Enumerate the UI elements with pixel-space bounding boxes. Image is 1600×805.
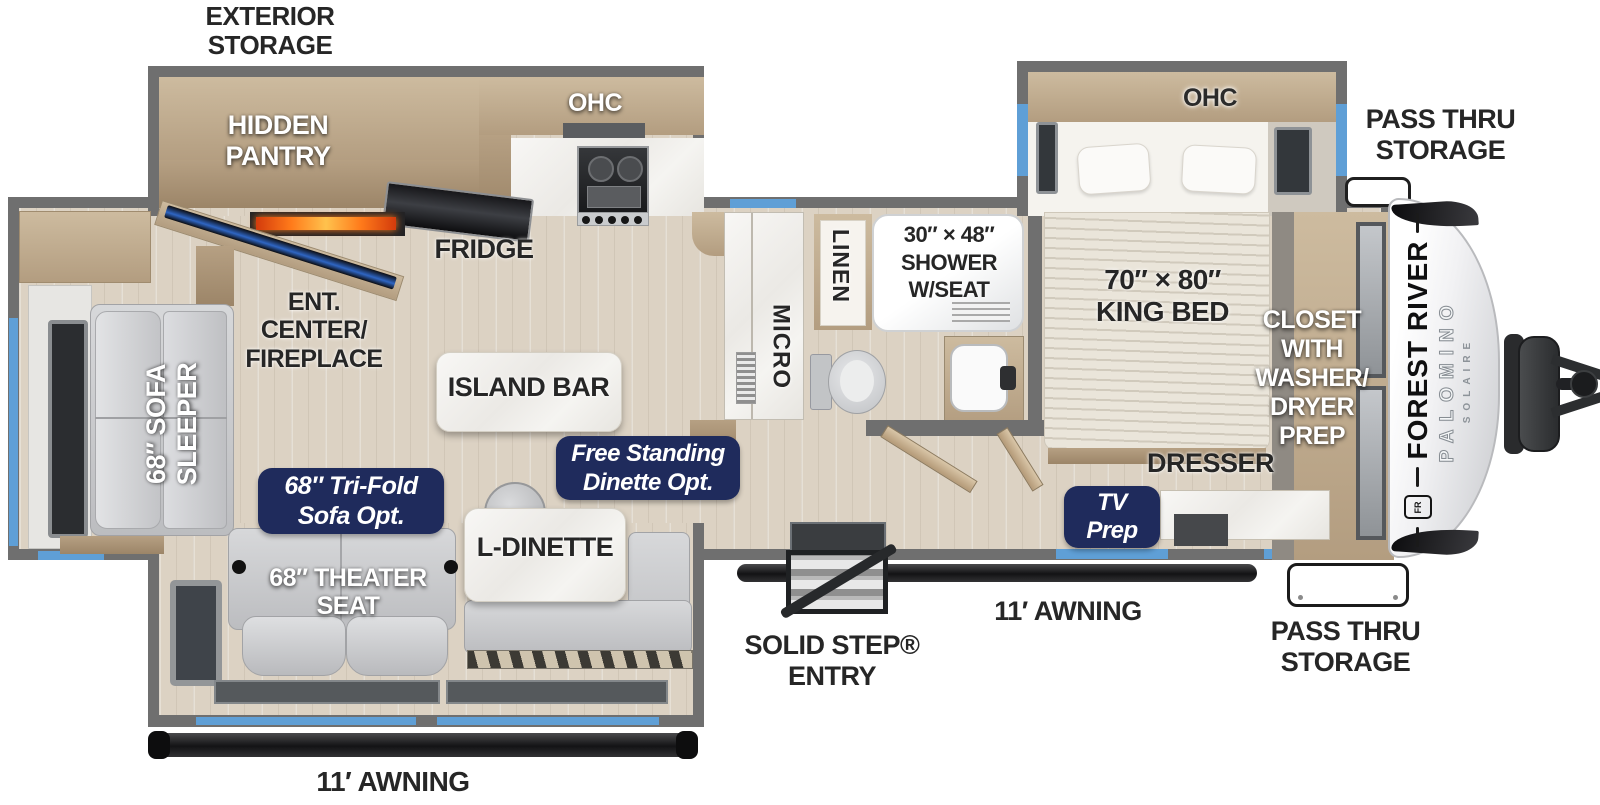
label-l-dinette: L-DINETTE	[470, 532, 620, 563]
faucet-icon	[1000, 366, 1016, 390]
brand-rule	[1416, 467, 1419, 487]
range-icon	[577, 146, 649, 214]
dinette-bench-bottom	[464, 600, 692, 654]
window-strip	[1056, 549, 1168, 559]
label-awning-door-side: 11′ AWNING	[983, 596, 1153, 627]
sofa-sleeper-mechanism	[48, 320, 88, 538]
label-ent-center: ENT.CENTER/FIREPLACE	[224, 288, 404, 373]
label-micro: MICRO	[767, 292, 794, 402]
awning-bar-rear	[153, 733, 693, 757]
brand-maker: FOREST RIVER	[1402, 241, 1434, 460]
label-solid-step-entry: SOLID STEP®ENTRY	[732, 630, 932, 691]
bath-bedroom-wall	[1028, 212, 1042, 426]
label-pass-thru-top: PASS THRUSTORAGE	[1358, 104, 1523, 165]
window-strip	[196, 717, 416, 725]
dinette-step-rug	[467, 650, 693, 669]
brand-rule	[1416, 213, 1419, 233]
label-shower: 30″ × 48″SHOWERW/SEAT	[874, 221, 1024, 304]
window-strip	[730, 199, 796, 208]
label-exterior-storage: EXTERIORSTORAGE	[170, 2, 370, 61]
dresser-tv-unit	[1174, 514, 1228, 546]
window-strip	[1336, 104, 1347, 176]
burner-icon	[617, 156, 643, 182]
brand-trim: SOLAIRE	[1462, 337, 1473, 423]
badge-tv-prep: TVPrep	[1064, 486, 1160, 548]
awning-end-cap	[148, 731, 170, 759]
floor-mat	[214, 680, 440, 704]
living-window-icon	[170, 580, 222, 686]
label-hidden-pantry: HIDDENPANTRY	[188, 110, 368, 171]
label-pass-thru-bottom: PASS THRUSTORAGE	[1263, 616, 1428, 677]
bedroom-window-icon	[1274, 127, 1312, 195]
fireplace-icon	[250, 212, 405, 236]
floor-mat	[446, 680, 668, 704]
brand-emblem: FR	[1404, 495, 1432, 519]
badge-free-standing-dinette-option: Free StandingDinette Opt.	[556, 436, 740, 500]
label-fridge: FRIDGE	[428, 234, 540, 265]
rear-cabinet-low	[60, 536, 164, 554]
label-ohc-bedroom: OHC	[1150, 84, 1270, 112]
awning-end-cap	[676, 731, 698, 759]
theater-cushion	[242, 616, 346, 676]
window-strip	[437, 717, 659, 725]
label-ohc-kitchen: OHC	[545, 89, 645, 117]
oven-door	[587, 186, 641, 208]
pillow-icon	[1181, 144, 1257, 195]
steps-landing	[790, 522, 886, 552]
cupholder-icon	[232, 560, 246, 574]
floorplan-diagram: FR FOREST RIVER PALOMINO SOLAIRE EXTERIO…	[0, 0, 1600, 805]
label-sofa-sleeper: 68″ SOFASLEEPER	[141, 314, 213, 534]
brand-rule	[1416, 527, 1419, 547]
pass-thru-door-bottom	[1287, 563, 1409, 607]
vent-grate-icon	[736, 352, 756, 404]
shower-drain	[952, 302, 1010, 322]
label-awning-rear: 11′ AWNING	[288, 766, 498, 798]
brand-mark: FR FOREST RIVER PALOMINO SOLAIRE	[1389, 205, 1485, 555]
label-theater-seat: 68″ THEATERSEAT	[248, 564, 448, 621]
brand-model: PALOMINO	[1437, 298, 1459, 463]
range-knobs	[577, 212, 649, 226]
theater-cushion	[346, 616, 448, 676]
label-closet: CLOSETWITHWASHER/ DRYERPREP	[1237, 306, 1387, 451]
hitch-coupler-icon	[1570, 370, 1598, 398]
label-linen: LINEN	[828, 214, 854, 318]
toilet-icon	[810, 350, 886, 412]
label-dresser: DRESSER	[1128, 448, 1293, 479]
label-king-bed: 70″ × 80″KING BED	[1065, 264, 1260, 327]
rear-ohc-cabinet	[19, 211, 151, 283]
window-strip	[1017, 104, 1028, 176]
burner-icon	[588, 156, 614, 182]
bedroom-window-icon	[1036, 122, 1058, 194]
badge-tri-fold-sofa-option: 68″ Tri-FoldSofa Opt.	[258, 468, 444, 534]
label-island-bar: ISLAND BAR	[446, 372, 611, 403]
pillow-icon	[1076, 143, 1151, 196]
window-strip	[9, 318, 18, 546]
